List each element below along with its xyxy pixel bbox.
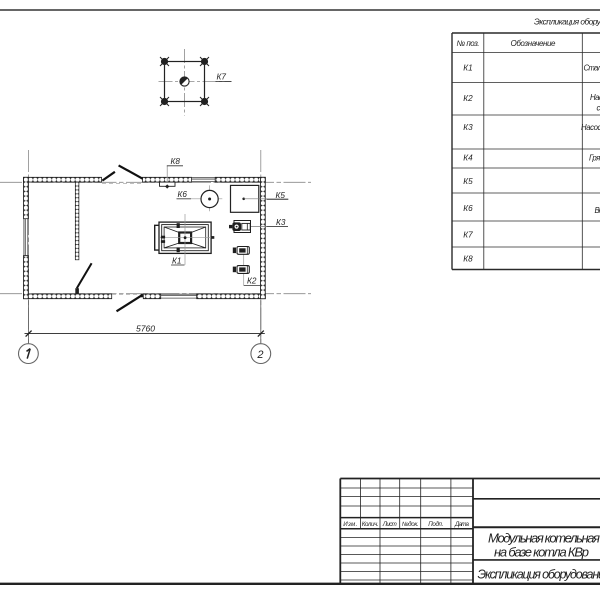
svg-text:Стальной котел КВр-0,93: Стальной котел КВр-0,93 <box>584 64 600 73</box>
svg-text:Колич.: Колич. <box>362 521 379 528</box>
svg-text:К8: К8 <box>171 157 181 166</box>
svg-text:К1: К1 <box>463 64 472 73</box>
svg-text:К5: К5 <box>463 177 473 186</box>
svg-text:К7: К7 <box>463 231 473 240</box>
svg-text:Экспликация оборудования: Экспликация оборудования <box>478 568 600 582</box>
svg-text:Грязевик абонентский: Грязевик абонентский <box>589 154 600 163</box>
svg-text:на базе котла КВр: на базе котла КВр <box>494 545 589 560</box>
svg-text:Экспликация оборудования: Экспликация оборудования <box>534 17 600 27</box>
svg-text:К7: К7 <box>217 73 227 82</box>
svg-text:Подп.: Подп. <box>428 521 443 528</box>
svg-text:Насос подпиточный: Насос подпиточный <box>581 123 600 132</box>
svg-text:5760: 5760 <box>136 324 155 334</box>
svg-text:Лист: Лист <box>382 521 397 528</box>
svg-text:Насос сетевой К 80-50-200: Насос сетевой К 80-50-200 <box>590 93 600 102</box>
svg-text:№док.: №док. <box>402 521 419 528</box>
svg-text:К6: К6 <box>463 204 473 213</box>
svg-text:К8: К8 <box>463 255 473 264</box>
svg-text:Модульная котельная: Модульная котельная <box>488 531 600 546</box>
svg-text:К5: К5 <box>276 191 286 200</box>
svg-text:Обозначение: Обозначение <box>511 39 557 48</box>
svg-text:Дата: Дата <box>454 521 470 528</box>
svg-text:К3: К3 <box>276 218 286 227</box>
svg-text:К4: К4 <box>463 154 473 163</box>
svg-text:с эл.двигателем: с эл.двигателем <box>597 104 600 113</box>
svg-text:2: 2 <box>256 349 263 361</box>
svg-text:Изм.: Изм. <box>343 521 357 528</box>
svg-text:№ поз.: № поз. <box>457 39 480 48</box>
svg-text:К3: К3 <box>463 123 473 132</box>
svg-text:К6: К6 <box>178 190 188 199</box>
svg-text:К1: К1 <box>172 256 181 265</box>
svg-text:К2: К2 <box>463 94 473 103</box>
svg-text:Вентилятор дутьевой: Вентилятор дутьевой <box>595 206 600 215</box>
svg-text:К2: К2 <box>247 277 257 286</box>
